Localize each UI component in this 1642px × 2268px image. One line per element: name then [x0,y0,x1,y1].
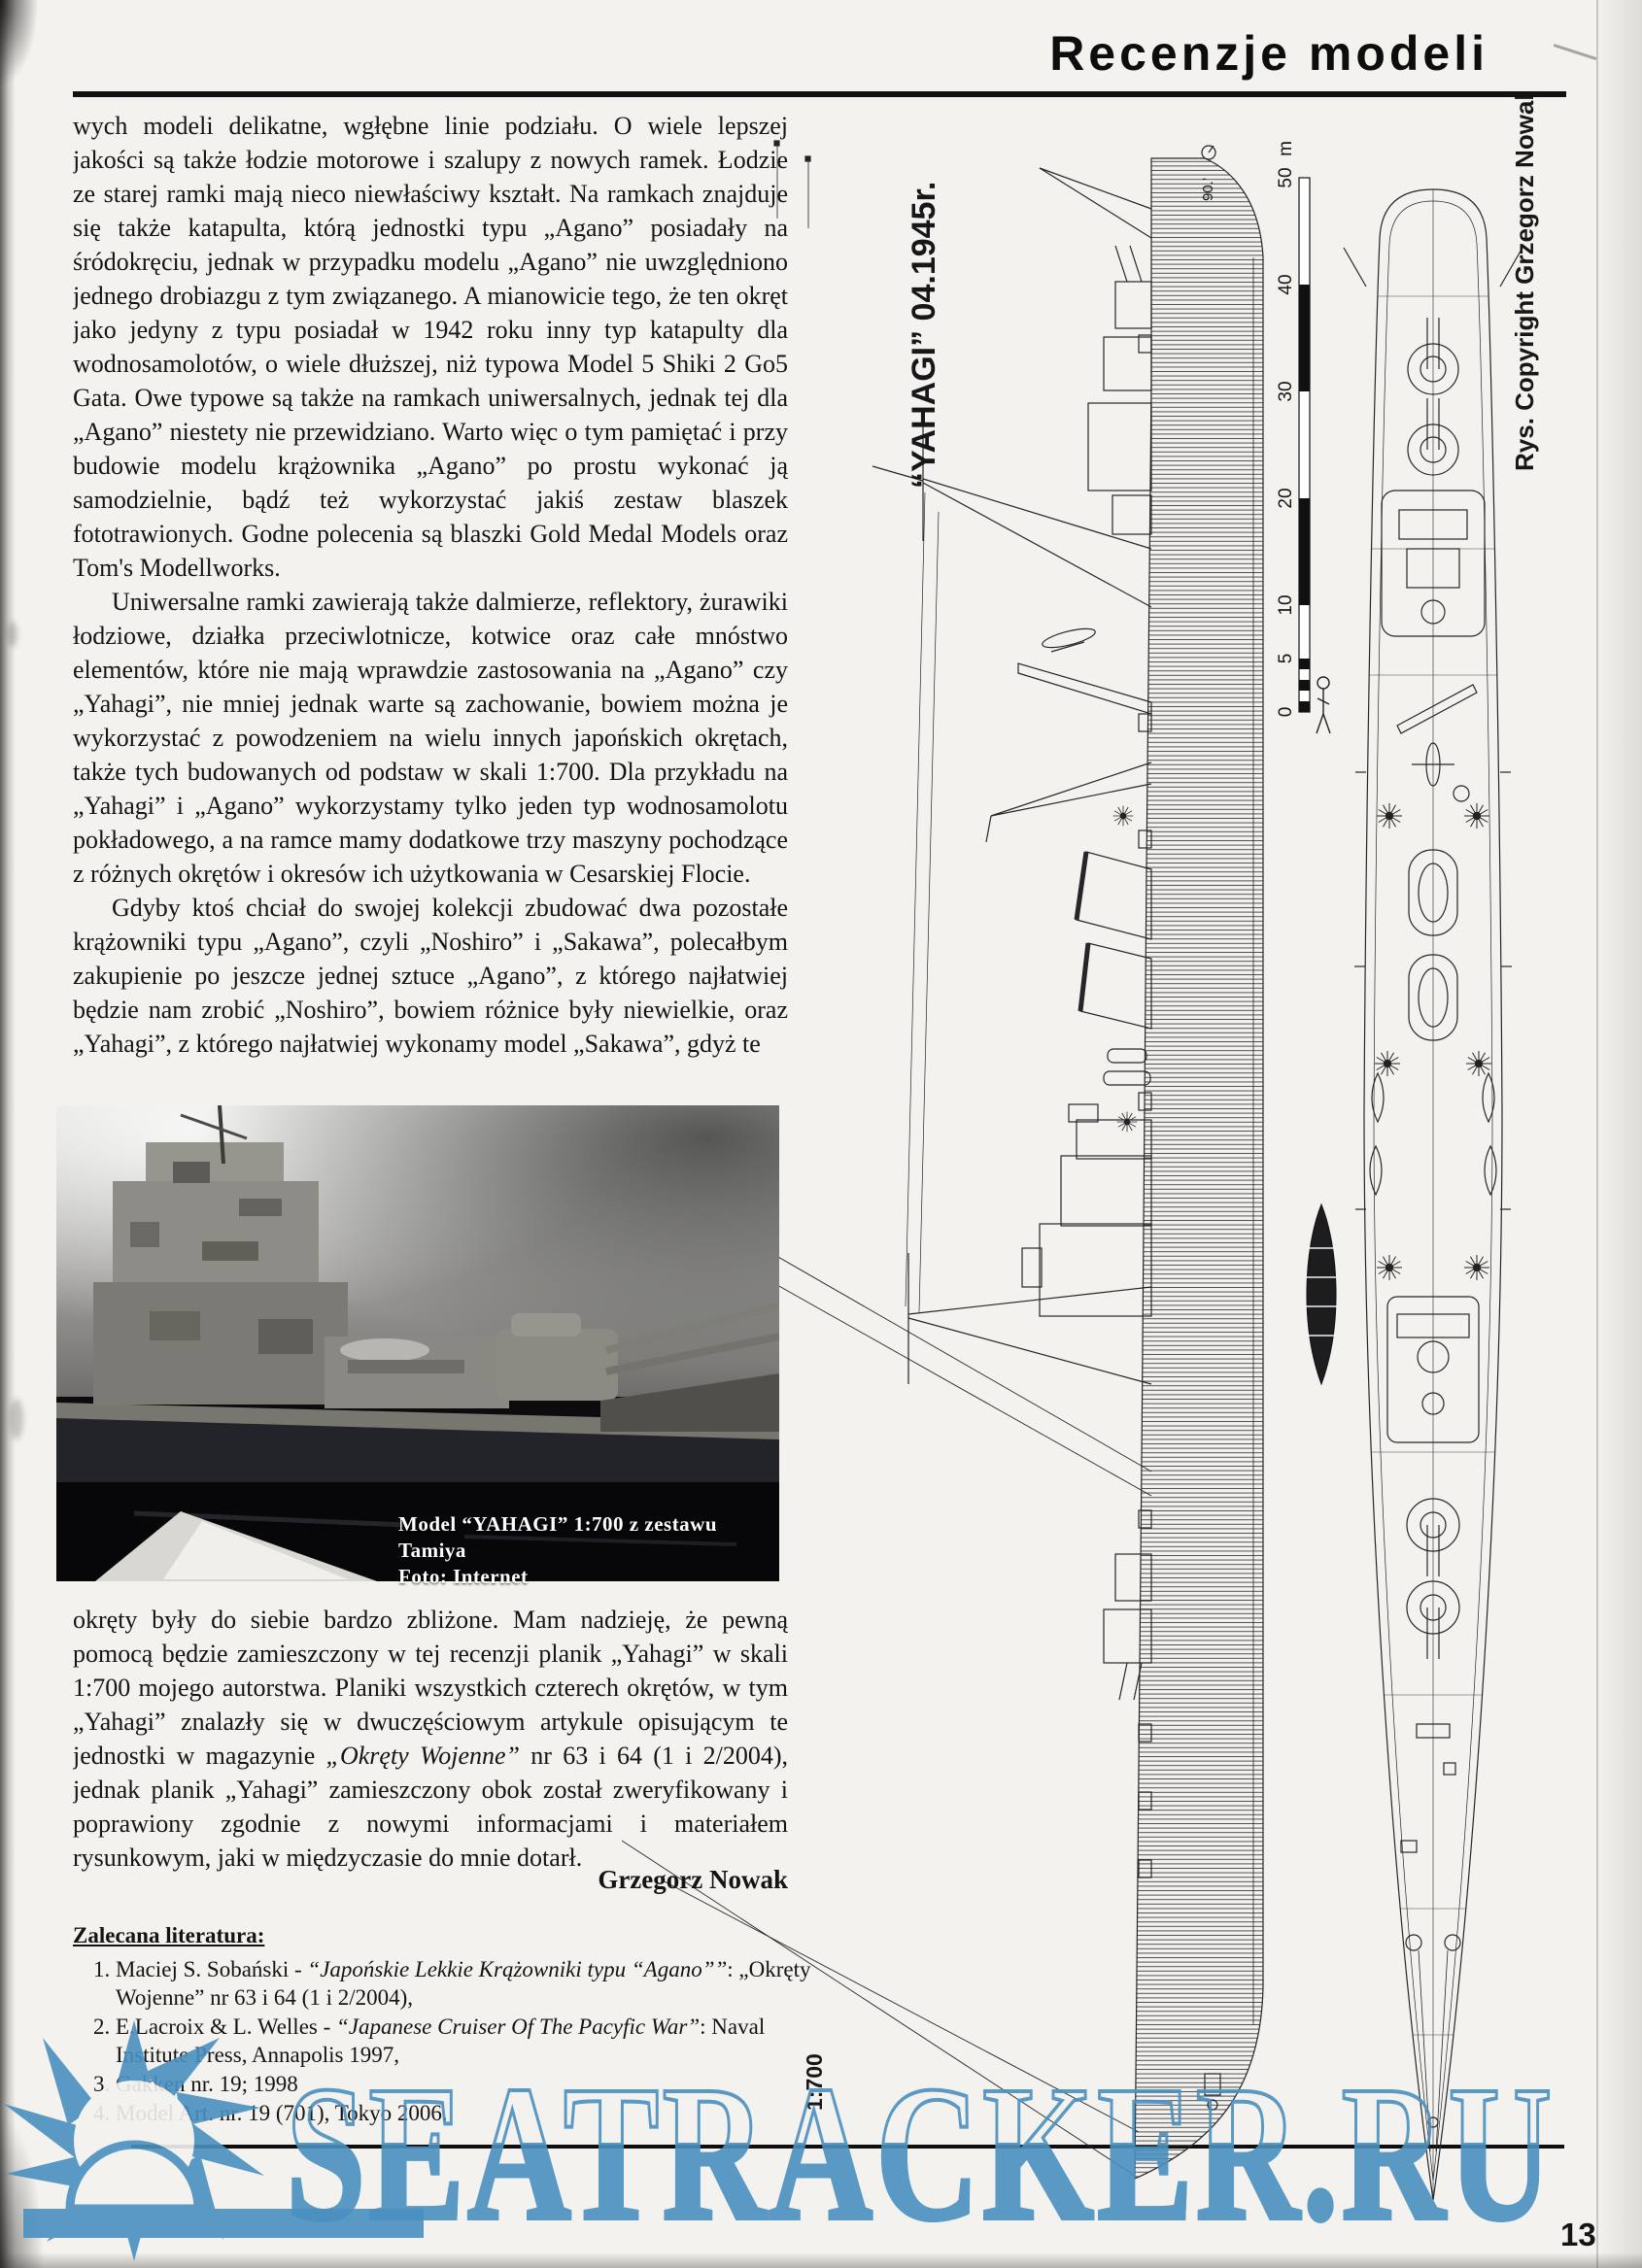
scan-left-edge-shadow [0,0,16,2268]
sun-logo-icon [0,1999,447,2268]
model-photo-image [56,1105,779,1581]
scan-smudge [10,1399,23,1439]
scan-right-edge [1595,0,1642,2268]
photo-caption: Model “YAHAGI” 1:700 z zestawu Tamiya Fo… [398,1511,779,1590]
scale-tick: 10 [1276,594,1296,615]
scale-tick: 30 [1276,381,1296,401]
paragraph-1: wych modeli delikatne, wgłębne linie pod… [73,109,788,585]
scale-bar: m 50 40 30 20 10 5 0 [1276,141,1310,717]
photo-caption-line1: Model “YAHAGI” 1:700 z zestawu Tamiya [398,1511,779,1564]
scale-tick: 20 [1276,488,1296,508]
scale-unit-label: m [1276,141,1296,156]
scale-tick: 5 [1276,654,1296,664]
section-header: Recenzje modeli [1049,25,1488,82]
scan-pencil-mark [1554,44,1597,60]
literature-heading: Zalecana literatura: [73,1921,821,1949]
plan-view [1341,189,1525,2200]
magazine-page: Recenzje modeli wych modeli delikatne, w… [0,0,1642,2268]
paragraph-4: okręty były do siebie bardzo zbliżone. M… [73,1603,788,1875]
author-signature: Grzegorz Nowak [73,1865,788,1895]
article-column: wych modeli delikatne, wgłębne linie pod… [73,109,788,1101]
page-number: 13 [1560,2217,1596,2253]
paragraph-2: Uniwersalne ramki zawierają także dalmie… [73,585,788,891]
scale-tick: 0 [1276,707,1296,718]
paragraph-3: Gdyby ktoś chciał do swojej kolekcji zbu… [73,891,788,1061]
photo-caption-line2: Foto: Internet [398,1564,779,1590]
header-rule [73,91,1566,97]
scan-corner-shadow [0,0,39,87]
scan-right-edge-line [1596,0,1598,2268]
scale-figure [1317,677,1330,733]
drawing-copyright: Rys. Copyright Grzegorz Nowak 2004 [1510,92,1539,471]
lifeboat-detail [1306,1204,1337,1384]
svg-text:90.’: 90.’ [1200,178,1216,201]
scan-smudge [8,622,17,647]
watermark-text: SEATRACKER.RU [286,2057,1555,2251]
article-column-continued: okręty były do siebie bardzo zbliżone. M… [73,1603,788,1882]
scale-tick: 50 [1276,167,1296,187]
scale-tick: 40 [1276,274,1296,294]
model-photo: Model “YAHAGI” 1:700 z zestawu Tamiya Fo… [56,1105,779,1581]
drawing-title: “YAHAGI” 04.1945r. [906,182,942,489]
